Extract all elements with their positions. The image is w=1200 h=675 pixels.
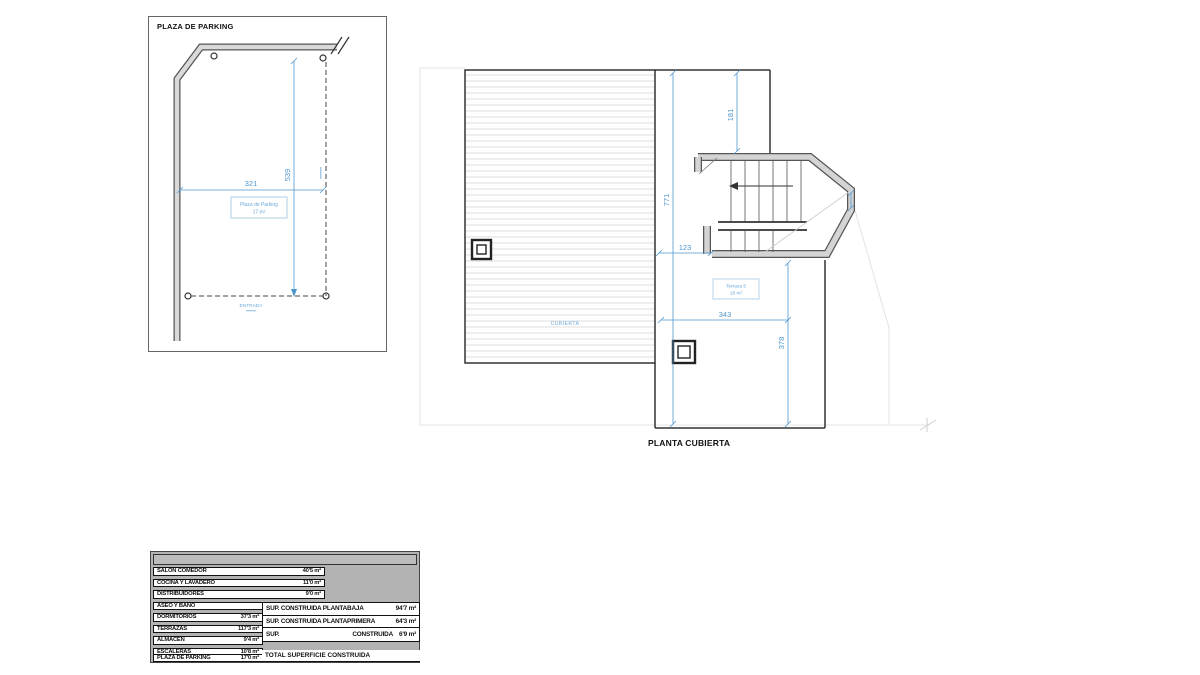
- row-value: 9'0 m²: [306, 591, 321, 597]
- table-header-band: [153, 554, 417, 565]
- roof-chimney: [472, 240, 491, 259]
- parking-space-label: Plaza de Parking: [240, 202, 278, 208]
- total-label: TOTAL SUPERFICIE CONSTRUIDA: [265, 652, 370, 659]
- terrace-chimney: [673, 341, 695, 363]
- dim-343: 343: [719, 310, 732, 319]
- summary-label-2: CONSTRUIDA: [352, 631, 393, 638]
- summary-label: SUP. CONSTRUIDA PLANTABAJA: [266, 605, 364, 612]
- table-row: COCINA Y LAVADERO 11'0 m²: [153, 579, 325, 588]
- roof-plan-drawing: CUBIERTA: [415, 60, 945, 435]
- table-row: DORMITORIOS 37'3 m²: [153, 613, 263, 622]
- summary-table: SUP. CONSTRUIDA PLANTABAJA 94'7 m² SUP. …: [262, 602, 420, 642]
- row-label: SALON COMEDOR: [157, 568, 207, 574]
- parking-space-dashed-outline: [191, 62, 326, 296]
- table-row: ALMACEN 9'4 m²: [153, 636, 263, 645]
- parking-posts: [185, 53, 329, 299]
- row-value: 40'5 m²: [303, 568, 321, 574]
- parking-dimensions: [177, 58, 326, 293]
- row-value: 117'3 m²: [238, 626, 259, 632]
- parking-plan-drawing: 321 539 Plaza de Parking 17 m² ENTRADA: [149, 17, 386, 351]
- entrance-micro-label: [246, 310, 256, 311]
- terrace-area: 18 m²: [730, 291, 743, 297]
- table-row: SALON COMEDOR 40'5 m²: [153, 567, 325, 576]
- row-label: ALMACEN: [157, 637, 185, 643]
- roof-hatched-area: [465, 70, 655, 363]
- dim-378: 378: [777, 337, 786, 350]
- stair-landing: [718, 222, 807, 230]
- stair-treads-upper: [731, 161, 801, 222]
- terrace-label: Terraza 5: [726, 284, 746, 290]
- summary-value: 64'3 m²: [396, 618, 416, 625]
- stair-enclosure-walls: [698, 157, 851, 254]
- row-value: 11'0 m²: [303, 580, 321, 586]
- summary-row: SUP. CONSTRUIDA PLANTAPRIMERA 64'3 m²: [263, 616, 419, 629]
- table-row: PLAZA DE PARKING 17'0 m²: [153, 654, 263, 663]
- row-value: 9'4 m²: [244, 637, 259, 643]
- drawing-sheet: PLAZA DE PARKING: [0, 0, 1200, 675]
- table-row: DISTRIBUIDORES 9'0 m²: [153, 590, 325, 599]
- summary-row: SUP. CONSTRUIDA 6'9 m²: [263, 628, 419, 641]
- table-row: TERRAZAS 117'3 m²: [153, 625, 263, 634]
- row-label: ASEO Y BAÑO: [157, 603, 195, 609]
- row-label: DISTRIBUIDORES: [157, 591, 204, 597]
- stair-treads-lower: [731, 231, 773, 252]
- row-label: COCINA Y LAVADERO: [157, 580, 215, 586]
- row-value: 17'0 m²: [241, 655, 259, 661]
- parking-plan-box: PLAZA DE PARKING: [148, 16, 387, 352]
- summary-value: 94'7 m²: [396, 605, 416, 612]
- parking-space-area: 17 m²: [253, 210, 266, 216]
- total-row: TOTAL SUPERFICIE CONSTRUIDA: [262, 650, 420, 662]
- side-micro-label: [320, 167, 322, 179]
- stair-direction-arrow: [729, 182, 793, 190]
- parking-height-dim: 539: [283, 169, 292, 182]
- dim-181: 181: [726, 109, 735, 122]
- dim-771: 771: [662, 194, 671, 207]
- summary-value: 6'9 m²: [399, 631, 416, 638]
- summary-label: SUP.: [266, 631, 279, 638]
- summary-row: SUP. CONSTRUIDA PLANTABAJA 94'7 m²: [263, 603, 419, 616]
- row-label: DORMITORIOS: [157, 614, 196, 620]
- row-label: TERRAZAS: [157, 626, 187, 632]
- row-value: 37'3 m²: [241, 614, 259, 620]
- parking-space-tag: Plaza de Parking 17 m²: [231, 197, 287, 218]
- parking-width-dim: 321: [245, 179, 258, 188]
- row-label: PLAZA DE PARKING: [157, 655, 210, 661]
- entrance-label: ENTRADA: [240, 303, 264, 309]
- summary-label: SUP. CONSTRUIDA PLANTAPRIMERA: [266, 618, 375, 625]
- terrace-tag: Terraza 5 18 m²: [713, 279, 759, 299]
- roof-area-label: CUBIERTA: [551, 321, 580, 327]
- dim-123: 123: [679, 243, 692, 252]
- roof-plan-title: PLANTA CUBIERTA: [648, 438, 730, 448]
